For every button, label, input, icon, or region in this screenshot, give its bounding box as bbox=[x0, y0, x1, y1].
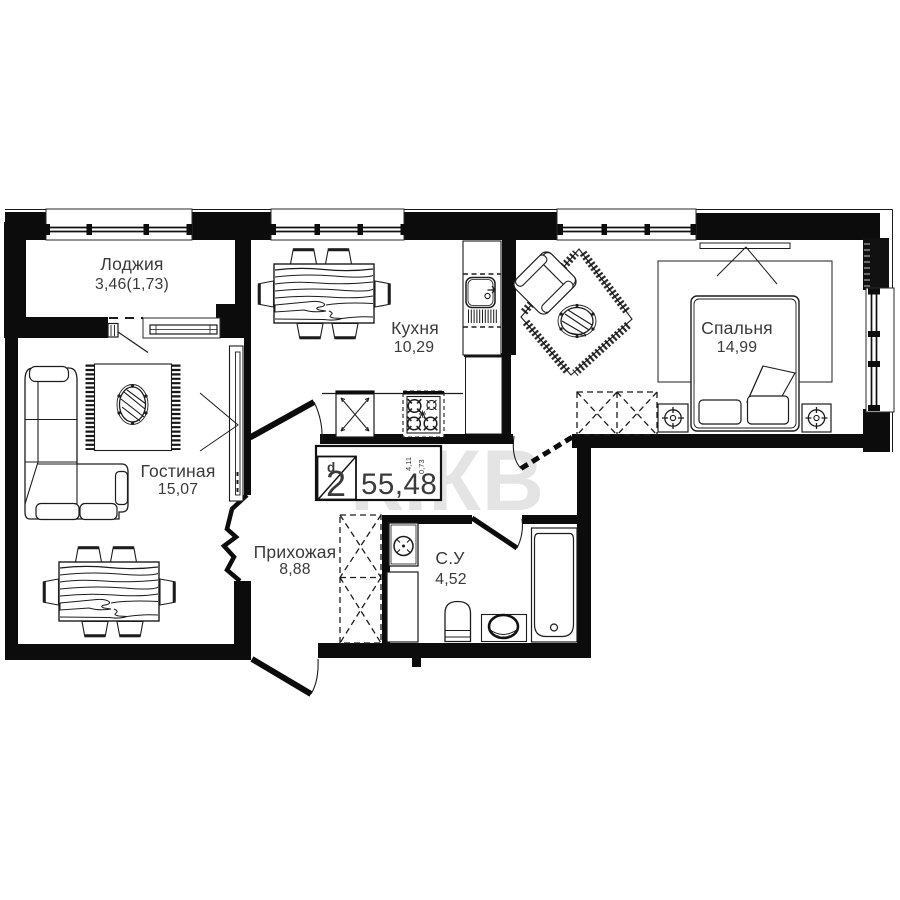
svg-text:Лоджия: Лоджия bbox=[100, 254, 163, 274]
svg-text:Спальня: Спальня bbox=[701, 318, 773, 338]
svg-text:Гостиная: Гостиная bbox=[140, 461, 215, 481]
svg-text:Кухня: Кухня bbox=[391, 318, 439, 338]
svg-text:Прихожая: Прихожая bbox=[254, 542, 337, 562]
svg-text:4,11: 4,11 bbox=[404, 457, 413, 471]
svg-text:0,73: 0,73 bbox=[417, 459, 426, 474]
svg-text:15,07: 15,07 bbox=[158, 481, 199, 498]
svg-text:3,46(1,73): 3,46(1,73) bbox=[95, 276, 169, 293]
svg-text:С.У: С.У bbox=[435, 548, 465, 568]
svg-text:8,88: 8,88 bbox=[279, 561, 311, 578]
svg-text:14,99: 14,99 bbox=[717, 339, 758, 356]
svg-text:4,52: 4,52 bbox=[435, 571, 467, 588]
svg-text:2: 2 bbox=[326, 463, 346, 504]
svg-text:10,29: 10,29 bbox=[394, 339, 435, 356]
